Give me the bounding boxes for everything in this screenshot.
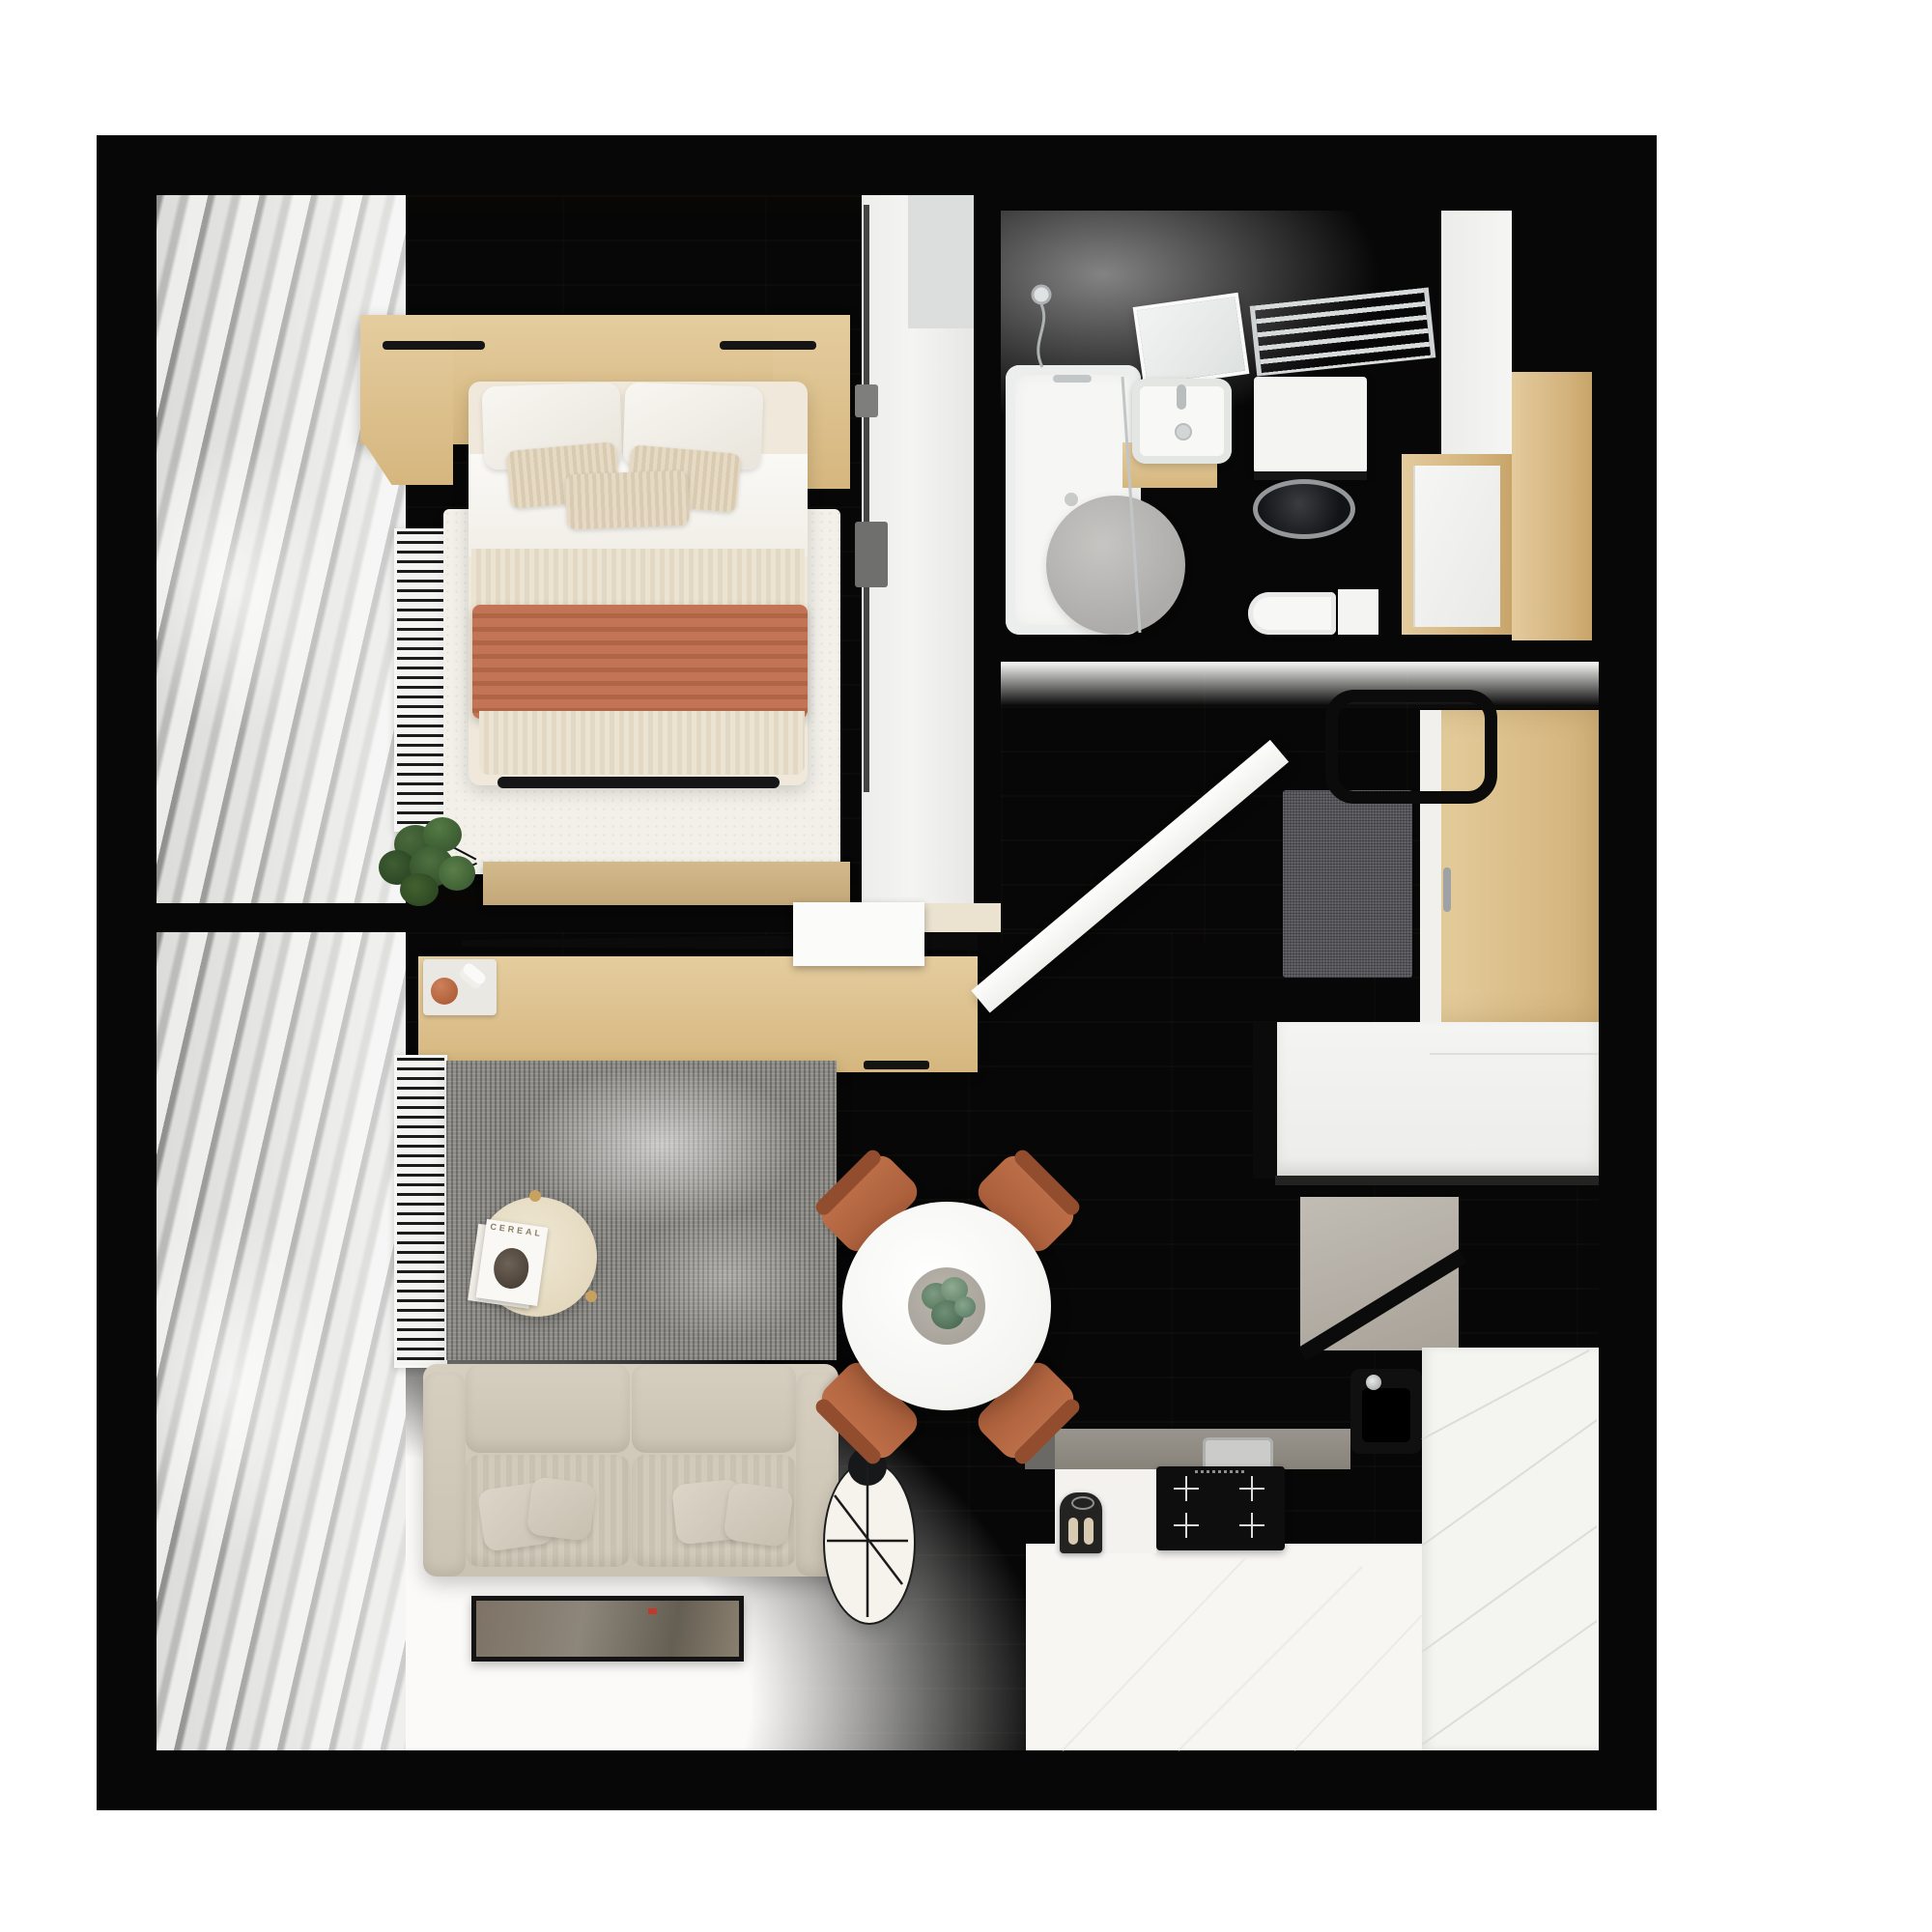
sink-basin <box>1362 1388 1410 1442</box>
sink-faucet-icon <box>1366 1375 1381 1390</box>
rail-bracket <box>855 384 878 417</box>
tv-sideboard <box>418 956 978 1072</box>
washing-machine <box>1254 377 1367 473</box>
bedroom-doorway-floor <box>924 903 1001 932</box>
bathroom-tall-cabinet <box>1441 211 1512 454</box>
entry-closet-wood <box>1512 372 1592 640</box>
artwork-on-floor <box>471 1596 744 1662</box>
console-handle-icon <box>1443 867 1451 912</box>
bath-faucet-icon <box>1053 375 1092 383</box>
basin-drain-icon <box>1175 423 1192 440</box>
bathroom-door <box>1413 466 1500 627</box>
washer-drum-icon <box>1253 479 1355 539</box>
kitchen-tall-units <box>1300 1197 1459 1350</box>
table-leg-icon <box>529 1190 541 1202</box>
machine-ring-icon <box>1071 1496 1094 1510</box>
wall-stub <box>1253 1022 1277 1179</box>
bedroom-radiator <box>394 528 447 832</box>
bedroom-bench <box>483 862 850 905</box>
table-leg-icon <box>585 1291 597 1302</box>
artwork-red-accent <box>648 1608 657 1614</box>
bed-footer <box>479 711 805 775</box>
doormat <box>1283 790 1412 978</box>
apartment-plan: CEREAL <box>97 135 1657 1810</box>
ceiling-light-frame <box>1325 690 1497 804</box>
rail-tv-mount <box>855 522 888 587</box>
bed-cushion-center <box>565 470 690 529</box>
magazine-stack: CEREAL <box>476 1219 549 1306</box>
centerpiece-plant <box>916 1275 978 1337</box>
coffee-machine <box>1060 1492 1102 1553</box>
induction-cooktop <box>1156 1466 1285 1550</box>
bed-blanket-band <box>471 549 805 611</box>
bedroom-curtains <box>156 195 406 903</box>
hall-cabinet-block <box>1275 1022 1599 1176</box>
headboard-slot-left <box>383 341 485 350</box>
living-radiator <box>394 1055 447 1368</box>
toilet-cistern <box>1338 589 1378 635</box>
cabinet-shadow-line <box>1275 1176 1599 1185</box>
kitchen-counter-right <box>1422 1348 1599 1750</box>
living-curtains <box>156 932 406 1750</box>
bathroom-round-rug <box>1046 496 1185 635</box>
wardrobe-duct <box>908 195 974 328</box>
sofa-pillow <box>723 1482 794 1548</box>
hall-cabinet-seam <box>1430 1053 1599 1055</box>
kitchen-white-floor <box>1026 1544 1422 1750</box>
floor-plan-page: CEREAL <box>0 0 1932 1932</box>
bathtub-drain-icon <box>1065 493 1078 506</box>
tv-panel-rail <box>864 205 869 792</box>
kitchen-counter-band <box>1025 1429 1350 1469</box>
bedroom-plant <box>377 817 485 910</box>
bedroom-door-open <box>793 902 924 966</box>
terracotta-throw <box>472 605 808 719</box>
magazine-photo-icon <box>491 1246 530 1292</box>
bed-frame-bar <box>497 777 780 788</box>
sofa-back-cushion <box>466 1364 630 1453</box>
coffee-cup-icon <box>1068 1518 1078 1545</box>
sofa-back-cushion <box>632 1364 796 1453</box>
sofa-armrest-left <box>423 1372 466 1577</box>
cooktop-controls-icon <box>1195 1470 1245 1473</box>
magazine-cover: CEREAL <box>476 1219 549 1306</box>
sofa-pillow <box>526 1476 597 1542</box>
terracotta-vase <box>431 978 458 1005</box>
threshold-light-strip <box>1001 662 1599 706</box>
sideboard-handle <box>864 1061 929 1069</box>
toilet <box>1248 592 1336 635</box>
coffee-cup-icon <box>1084 1518 1094 1545</box>
mirror <box>1133 293 1250 388</box>
basin-faucet-icon <box>1177 384 1186 410</box>
headboard-slot-right <box>720 341 816 350</box>
